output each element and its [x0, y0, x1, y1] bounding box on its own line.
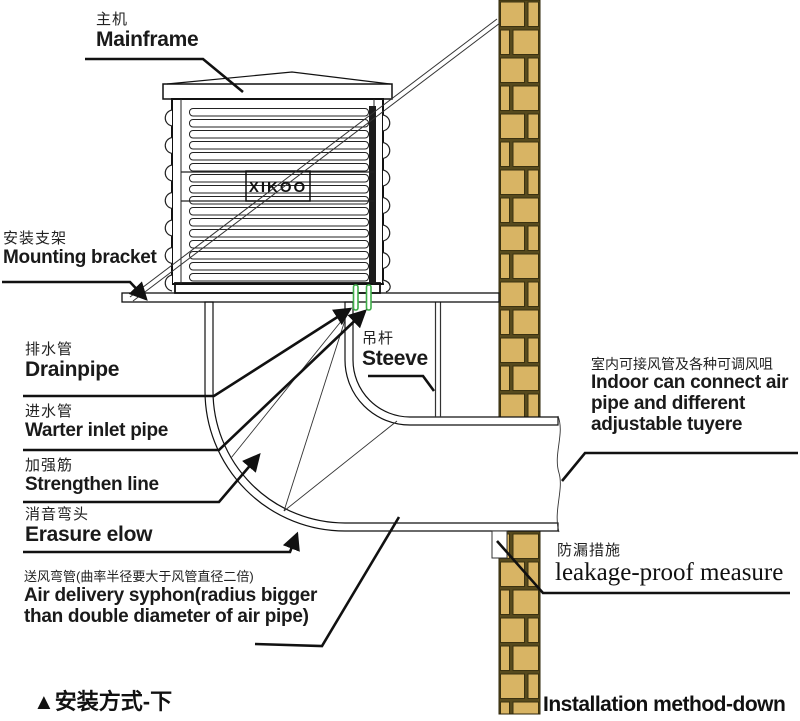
- label-indoor: 室内可接风管及各种可调风咀 Indoor can connect air pip…: [591, 356, 788, 435]
- label-indoor-en2: pipe and different: [591, 393, 788, 414]
- caption-left: ▲安装方式-下: [33, 689, 172, 714]
- label-indoor-cn: 室内可接风管及各种可调风咀: [591, 356, 788, 372]
- leader-mounting-bracket: [2, 282, 146, 299]
- label-erasure-cn: 消音弯头: [25, 506, 152, 523]
- label-strengthen: 加强筋 Strengthen line: [25, 457, 159, 496]
- label-leakage-en: leakage-proof measure: [555, 559, 783, 588]
- label-leakage: 防漏措施 leakage-proof measure: [557, 542, 783, 588]
- label-steeve-en: Steeve: [362, 347, 428, 371]
- label-steeve: 吊杆 Steeve: [362, 330, 428, 371]
- label-strengthen-en: Strengthen line: [25, 474, 159, 496]
- label-indoor-en3: adjustable tuyere: [591, 414, 788, 435]
- label-mounting-bracket-en: Mounting bracket: [3, 247, 157, 269]
- label-water-inlet: 进水管 Warter inlet pipe: [25, 403, 168, 442]
- water-inlet-pipe: [367, 285, 372, 310]
- drain-pipe: [354, 285, 359, 310]
- label-erasure-en: Erasure elow: [25, 523, 152, 547]
- label-leakage-cn: 防漏措施: [557, 542, 783, 559]
- brick-wall: [499, 0, 540, 714]
- strengthen-rib: [231, 309, 351, 458]
- wall-opening: [492, 417, 548, 531]
- label-water-inlet-en: Warter inlet pipe: [25, 420, 168, 442]
- caption-left-text: 安装方式-下: [55, 689, 172, 714]
- label-steeve-cn: 吊杆: [362, 330, 428, 347]
- mainframe-unit: XIKOO: [163, 72, 392, 293]
- label-drainpipe: 排水管 Drainpipe: [25, 341, 119, 382]
- label-indoor-en1: Indoor can connect air: [591, 372, 788, 393]
- label-mainframe-en: Mainframe: [96, 28, 198, 52]
- label-mounting-bracket: 安装支架 Mounting bracket: [3, 230, 157, 269]
- unit-right-clips: [383, 115, 390, 292]
- brand-logo: XIKOO: [249, 179, 307, 196]
- unit-shadow-band: [369, 106, 376, 283]
- strengthen-rib: [284, 320, 345, 511]
- duct-break-line: [557, 416, 560, 532]
- hanger-rod: [436, 302, 441, 417]
- water-pipes: [354, 285, 372, 310]
- installation-diagram: XIKOO 主机 Mainframe 安: [0, 0, 800, 721]
- label-air-delivery-cn: 送风弯管(曲率半径要大于风管直径二倍): [24, 570, 317, 585]
- leader-mainframe: [85, 59, 243, 92]
- leader-steeve: [368, 376, 434, 391]
- label-strengthen-cn: 加强筋: [25, 457, 159, 474]
- triangle-marker: ▲: [33, 689, 55, 714]
- label-drainpipe-en: Drainpipe: [25, 358, 119, 382]
- mounting-bracket-plate: [122, 293, 499, 302]
- label-erasure: 消音弯头 Erasure elow: [25, 506, 152, 547]
- label-mainframe-cn: 主机: [96, 11, 198, 28]
- unit-cap: [163, 84, 392, 99]
- label-air-delivery-en2: than double diameter of air pipe): [24, 606, 317, 627]
- label-drainpipe-cn: 排水管: [25, 341, 119, 358]
- strengthen-rib: [284, 421, 397, 511]
- unit-left-clips: [165, 110, 172, 291]
- caption-right: Installation method-down: [543, 693, 785, 717]
- label-water-inlet-cn: 进水管: [25, 403, 168, 420]
- label-air-delivery-en1: Air delivery syphon(radius bigger: [24, 585, 317, 606]
- label-mainframe: 主机 Mainframe: [96, 11, 198, 52]
- label-air-delivery: 送风弯管(曲率半径要大于风管直径二倍) Air delivery syphon(…: [24, 570, 317, 627]
- label-mounting-bracket-cn: 安装支架: [3, 230, 157, 247]
- leader-indoor: [562, 453, 798, 481]
- unit-roof: [167, 72, 390, 84]
